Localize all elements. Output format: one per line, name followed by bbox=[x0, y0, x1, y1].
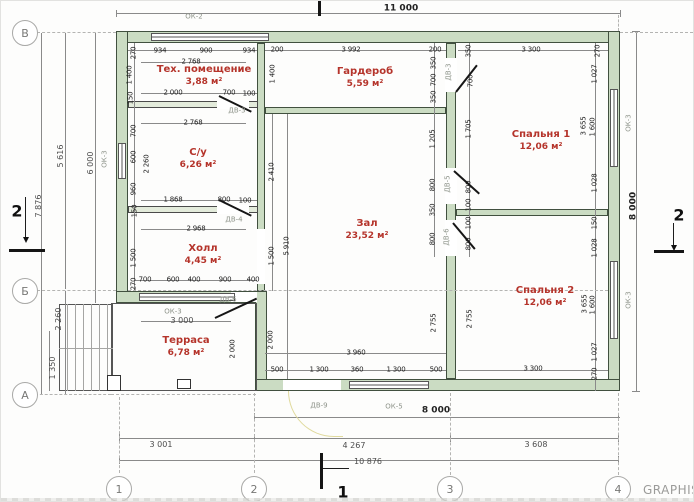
axis-marker: В bbox=[12, 20, 38, 46]
floor-plan: 11 0009349009342702003 9922003 3002702 7… bbox=[0, 0, 694, 502]
section-marker-label: 2 bbox=[673, 206, 684, 225]
axis-layer: ВБА1234221 bbox=[1, 1, 694, 502]
scan-edge-artifact bbox=[1, 498, 694, 502]
watermark-text: GRAPHISO bbox=[643, 483, 694, 497]
section-marker-label: 2 bbox=[11, 202, 22, 221]
axis-marker: А bbox=[12, 382, 38, 408]
axis-marker: Б bbox=[12, 278, 38, 304]
